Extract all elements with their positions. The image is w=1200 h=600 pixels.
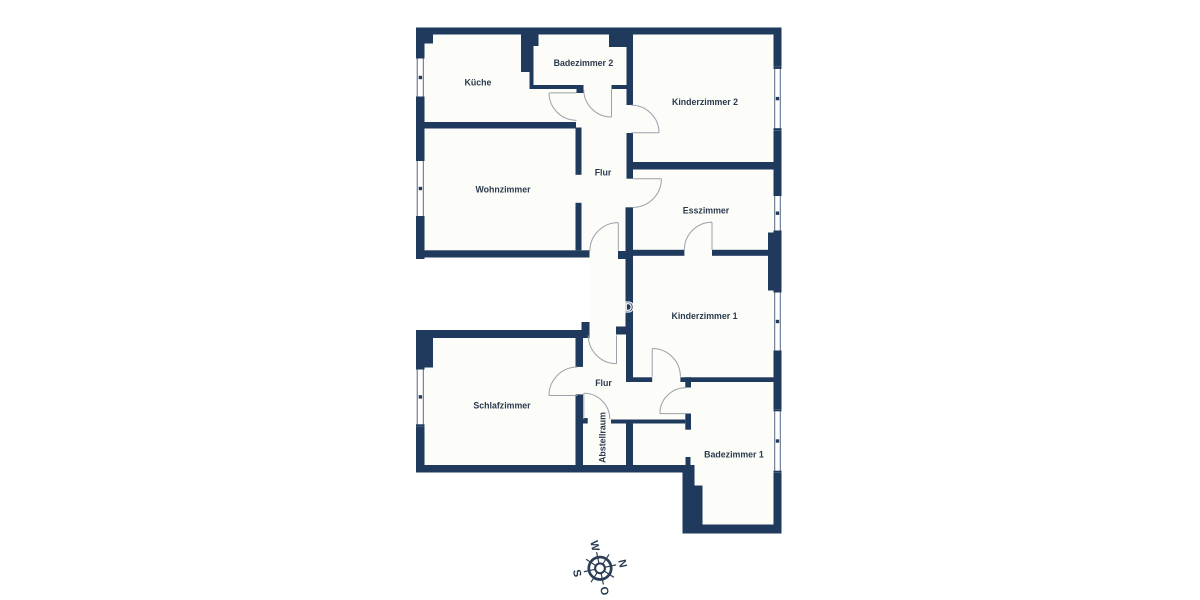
svg-text:Badezimmer 2: Badezimmer 2 — [554, 58, 614, 68]
svg-text:Kinderzimmer 2: Kinderzimmer 2 — [672, 97, 738, 107]
svg-text:Flur: Flur — [595, 167, 612, 177]
svg-text:Kinderzimmer 1: Kinderzimmer 1 — [672, 311, 738, 321]
svg-text:Schlafzimmer: Schlafzimmer — [473, 400, 531, 410]
svg-text:Badezimmer 1: Badezimmer 1 — [704, 449, 764, 459]
svg-text:Küche: Küche — [465, 77, 492, 87]
svg-text:Abstellraum: Abstellraum — [598, 412, 608, 463]
svg-text:Flur: Flur — [595, 378, 612, 388]
svg-text:Esszimmer: Esszimmer — [683, 205, 730, 215]
svg-text:Wohnzimmer: Wohnzimmer — [475, 184, 531, 194]
